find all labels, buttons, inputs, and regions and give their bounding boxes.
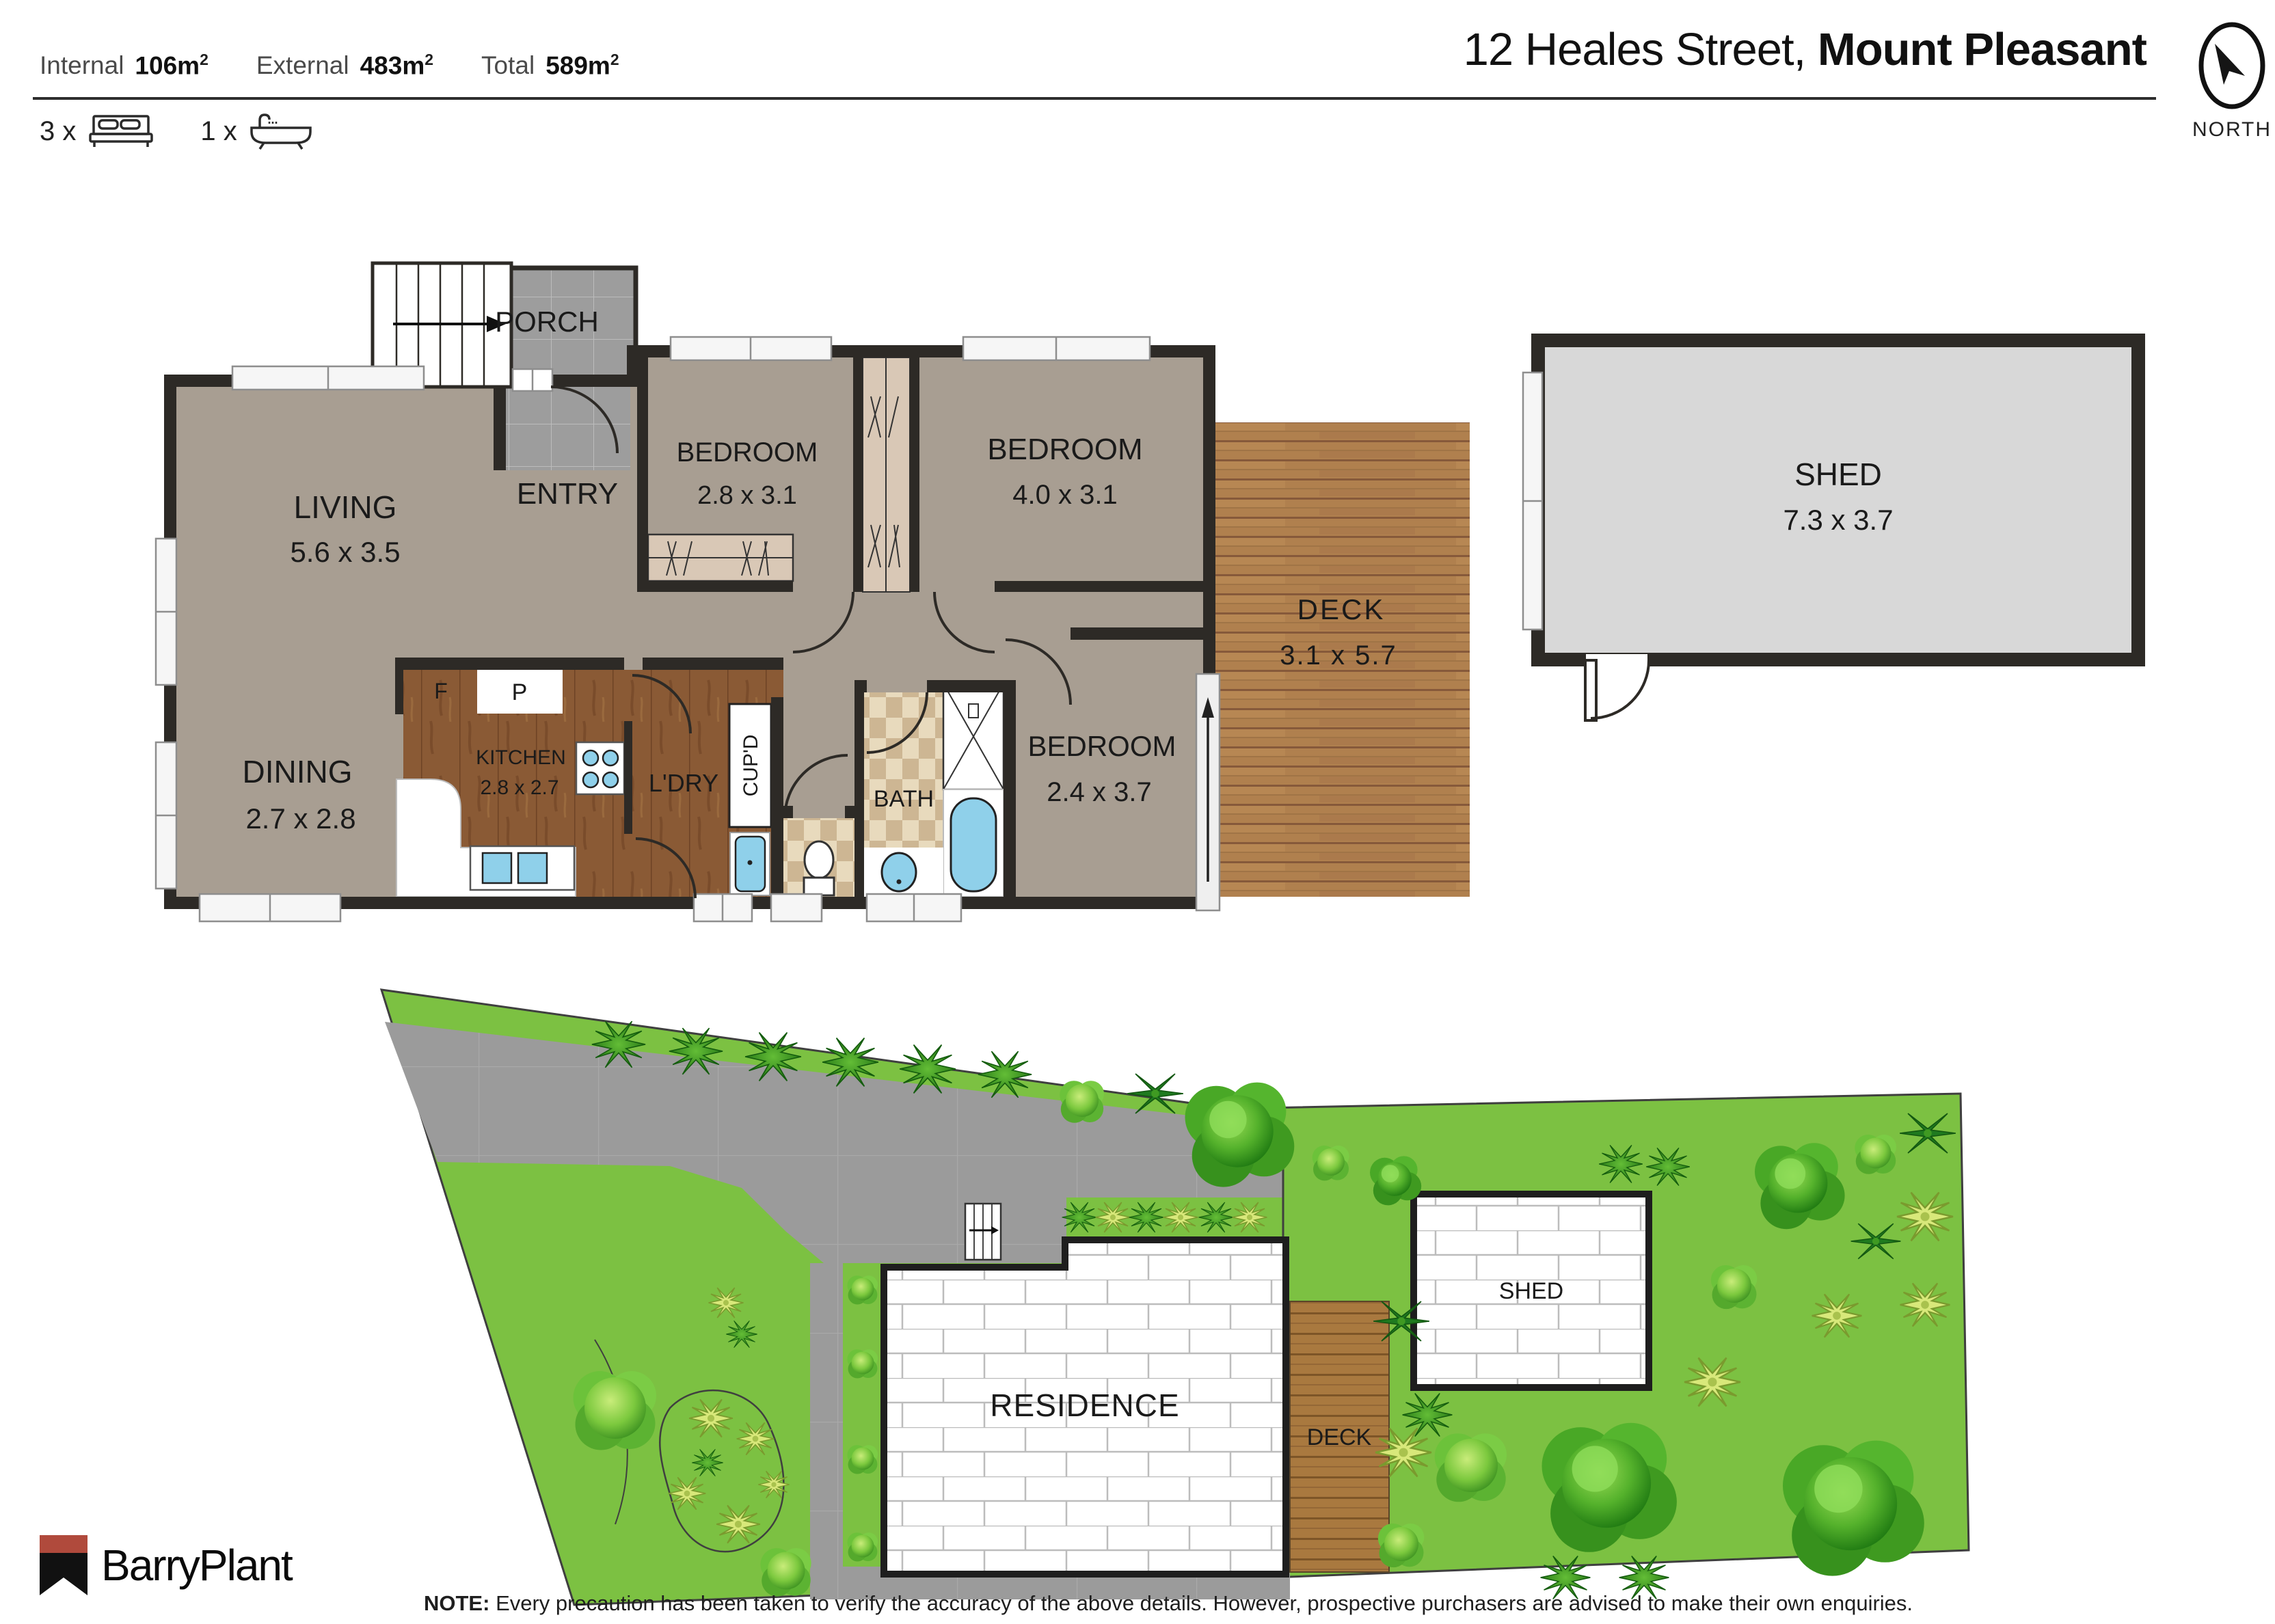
sink-bowl bbox=[518, 853, 547, 883]
brand-logo: BarryPlant bbox=[40, 1535, 292, 1595]
residence-label: RESIDENCE bbox=[990, 1388, 1179, 1423]
bedroom2-label: BEDROOM bbox=[987, 433, 1142, 466]
bookmark-icon bbox=[40, 1535, 87, 1595]
bedroom2-dims: 4.0 x 3.1 bbox=[1012, 480, 1117, 510]
bath-label: BATH bbox=[874, 786, 934, 812]
disclaimer-note: NOTE: Every precaution has been taken to… bbox=[424, 1591, 1913, 1616]
note-label: NOTE: bbox=[424, 1591, 489, 1615]
brand-name: BarryPlant bbox=[101, 1540, 292, 1591]
floorplan-page: Internal106m2 External483m2 Total589m2 3… bbox=[0, 0, 2275, 1624]
deck-dims: 3.1 x 5.7 bbox=[1280, 640, 1397, 671]
laundry-label: L'DRY bbox=[649, 769, 718, 797]
pantry-label: P bbox=[512, 679, 528, 705]
bathtub bbox=[951, 798, 996, 891]
site-deck-label: DECK bbox=[1307, 1424, 1372, 1450]
robe-bedroom1 bbox=[648, 534, 793, 581]
bedroom1-label: BEDROOM bbox=[677, 437, 818, 468]
fridge-label: F bbox=[434, 679, 448, 703]
sink-bowl bbox=[483, 853, 511, 883]
living-dims: 5.6 x 3.5 bbox=[290, 536, 400, 568]
bedroom1-dims: 2.8 x 3.1 bbox=[697, 481, 797, 510]
shed-plan: SHED 7.3 x 3.7 bbox=[1523, 340, 2138, 720]
floor-plan: PORCH LIVING 5.6 x 3.5 ENTRY BEDROOM 2.8… bbox=[156, 263, 1470, 921]
shed-door-leaf bbox=[1585, 660, 1596, 720]
kitchen-label: KITCHEN bbox=[476, 746, 566, 769]
bedroom3-dims: 2.4 x 3.7 bbox=[1047, 777, 1151, 807]
bedroom3-label: BEDROOM bbox=[1027, 730, 1176, 762]
cupboard-label: CUP'D bbox=[740, 735, 762, 797]
note-text: Every precaution has been taken to verif… bbox=[496, 1591, 1913, 1615]
shed-label: SHED bbox=[1794, 457, 1882, 492]
deck-label: DECK bbox=[1297, 593, 1386, 625]
stove bbox=[576, 742, 624, 794]
dining-label: DINING bbox=[243, 754, 353, 789]
site-stairs bbox=[965, 1204, 1001, 1260]
shed-dims: 7.3 x 3.7 bbox=[1783, 504, 1893, 536]
living-label: LIVING bbox=[294, 489, 397, 525]
side-path bbox=[810, 1263, 843, 1572]
site-shed-label: SHED bbox=[1499, 1278, 1563, 1304]
plan-canvas: PORCH LIVING 5.6 x 3.5 ENTRY BEDROOM 2.8… bbox=[0, 0, 2275, 1624]
toilet bbox=[805, 841, 833, 878]
shed-outline bbox=[1538, 340, 2138, 660]
dining-dims: 2.7 x 2.8 bbox=[245, 802, 355, 835]
robe-between-bedrooms bbox=[863, 357, 910, 592]
kitchen-dims: 2.8 x 2.7 bbox=[480, 776, 558, 799]
site-plan: RESIDENCE DECK SHED bbox=[381, 990, 1969, 1605]
entry-label: ENTRY bbox=[517, 477, 618, 511]
porch-label: PORCH bbox=[495, 306, 599, 338]
sliding-door bbox=[1196, 674, 1220, 910]
basin bbox=[882, 853, 916, 891]
